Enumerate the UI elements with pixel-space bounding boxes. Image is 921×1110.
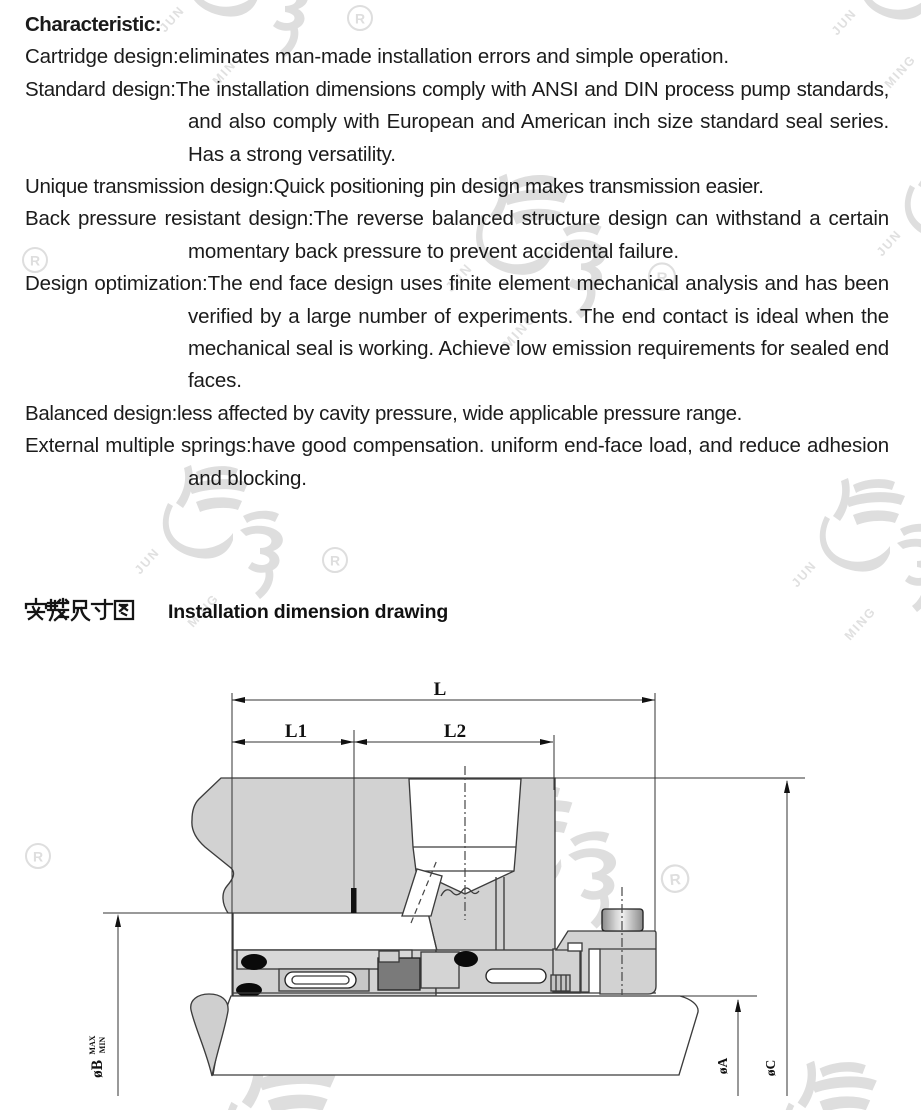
svg-text:L1: L1 bbox=[285, 721, 307, 742]
svg-text:øC: øC bbox=[763, 1060, 778, 1077]
svg-text:MAX: MAX bbox=[88, 1035, 97, 1054]
svg-text:L2: L2 bbox=[444, 721, 466, 742]
svg-text:øA: øA bbox=[715, 1058, 730, 1075]
svg-text:L: L bbox=[434, 679, 447, 700]
svg-text:øB: øB bbox=[89, 1060, 106, 1078]
svg-text:MIN: MIN bbox=[98, 1037, 107, 1054]
